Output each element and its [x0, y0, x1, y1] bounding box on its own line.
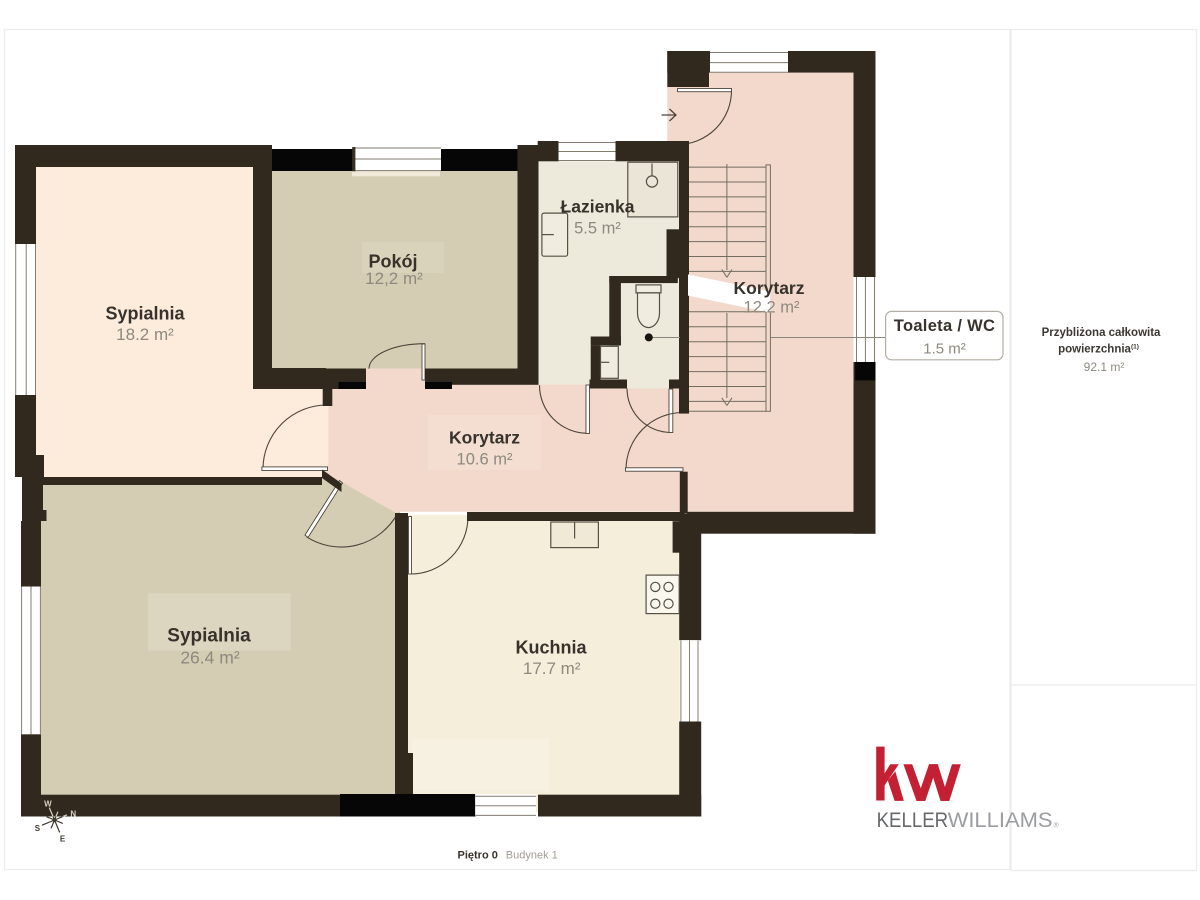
- svg-text:5.5 m²: 5.5 m²: [574, 220, 621, 238]
- svg-text:Toaleta / WC: Toaleta / WC: [894, 317, 995, 335]
- svg-text:N: N: [70, 810, 76, 819]
- svg-text:WILLIAMS: WILLIAMS: [948, 808, 1053, 832]
- svg-text:Kuchnia: Kuchnia: [515, 638, 587, 658]
- svg-text:E: E: [60, 835, 66, 844]
- svg-text:92.1 m²: 92.1 m²: [1084, 360, 1125, 374]
- svg-text:S: S: [35, 824, 41, 833]
- svg-text:powierzchnia(1): powierzchnia(1): [1058, 343, 1139, 355]
- svg-text:Sypialnia: Sypialnia: [167, 626, 251, 647]
- svg-text:KELLER: KELLER: [877, 808, 949, 832]
- svg-text:Korytarz: Korytarz: [734, 278, 805, 298]
- svg-text:Piętro 0: Piętro 0: [458, 849, 498, 861]
- svg-text:Korytarz: Korytarz: [449, 428, 520, 448]
- svg-text:12,2 m²: 12,2 m²: [365, 269, 423, 288]
- svg-text:Budynek 1: Budynek 1: [506, 849, 558, 861]
- svg-text:1.5 m²: 1.5 m²: [923, 341, 966, 358]
- svg-text:10.6 m²: 10.6 m²: [457, 451, 513, 469]
- svg-text:26.4 m²: 26.4 m²: [180, 648, 239, 668]
- svg-text:18.2 m²: 18.2 m²: [116, 325, 174, 344]
- svg-text:17.7 m²: 17.7 m²: [523, 659, 581, 678]
- svg-text:Przybliżona całkowita: Przybliżona całkowita: [1042, 327, 1161, 339]
- svg-text:Łazienka: Łazienka: [561, 197, 635, 217]
- svg-text:12.2 m²: 12.2 m²: [744, 299, 800, 317]
- svg-text:Sypialnia: Sypialnia: [105, 304, 185, 324]
- svg-text:®: ®: [1054, 822, 1060, 830]
- svg-text:W: W: [44, 800, 52, 809]
